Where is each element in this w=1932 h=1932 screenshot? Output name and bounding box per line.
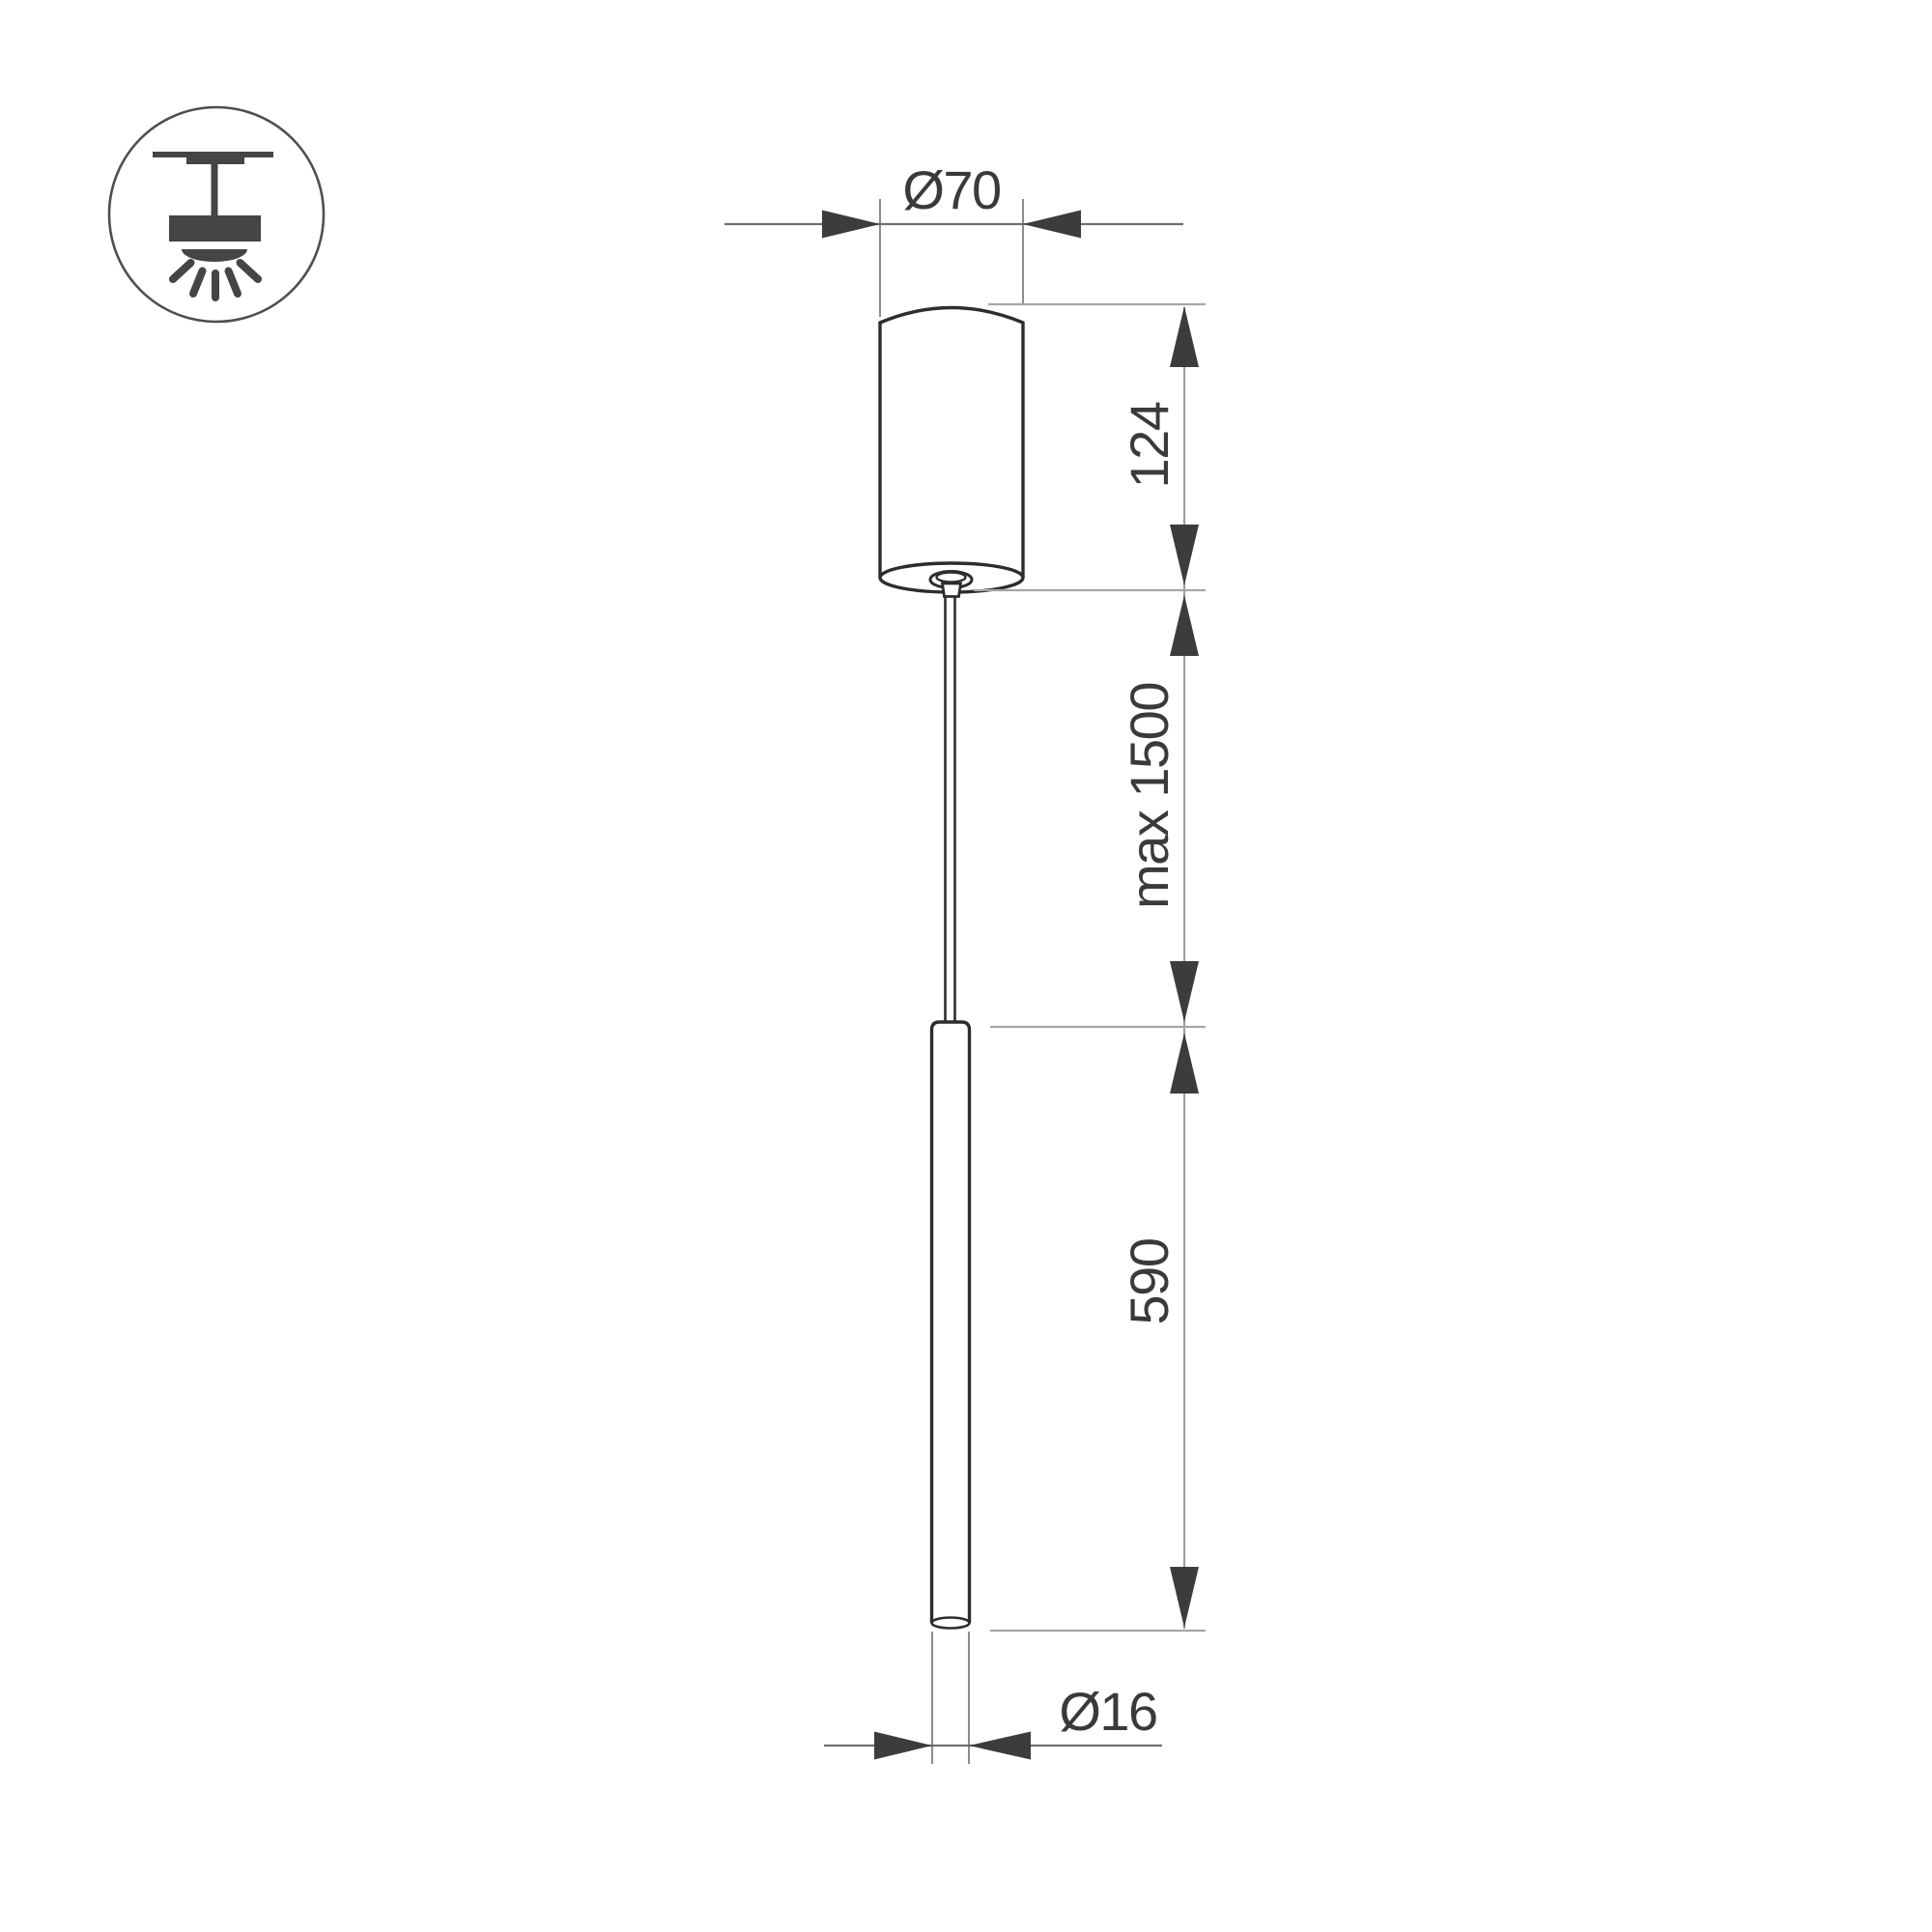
- dim-tube-diameter-label: Ø16: [1059, 1681, 1156, 1742]
- icon-lamp-body: [169, 215, 261, 241]
- tube-outline: [932, 1022, 970, 1623]
- arrow-up-icon: [1170, 1033, 1199, 1094]
- fixture-drawing: [880, 308, 1023, 1629]
- arrow-left-icon: [1023, 211, 1081, 239]
- dimension-tube-length: 590: [1119, 1033, 1199, 1628]
- dimension-canopy-height: 124: [1119, 306, 1199, 585]
- dimension-suspension-length: max 1500: [1119, 595, 1199, 1022]
- tube-bottom-rim: [932, 1618, 970, 1629]
- arrow-right-icon: [822, 211, 880, 239]
- arrow-right-icon: [874, 1732, 932, 1760]
- ceiling-pendant-mount-icon: [109, 107, 324, 322]
- arrow-up-icon: [1170, 306, 1199, 367]
- arrow-left-icon: [969, 1732, 1031, 1760]
- vertical-dimension-chain: 124 max 1500 590: [974, 304, 1206, 1631]
- cable-gland: [943, 583, 961, 597]
- dim-canopy-height-label: 124: [1119, 402, 1179, 488]
- arrow-down-icon: [1170, 961, 1199, 1022]
- cable-connector-rim: [937, 573, 966, 582]
- icon-stem: [212, 162, 218, 215]
- arrow-down-icon: [1170, 1567, 1199, 1628]
- canopy-outline: [880, 308, 1023, 579]
- pendant-luminaire-dimension-drawing: Ø70 124 max 1500 590: [0, 0, 1932, 1932]
- dimension-tube-diameter: Ø16: [824, 1632, 1162, 1764]
- arrow-down-icon: [1170, 525, 1199, 585]
- dimension-canopy-diameter: Ø70: [724, 159, 1183, 317]
- technical-drawing-page: Ø70 124 max 1500 590: [0, 0, 1932, 1932]
- dim-suspension-label: max 1500: [1119, 683, 1179, 909]
- dim-canopy-diameter-label: Ø70: [902, 159, 1000, 220]
- arrow-up-icon: [1170, 595, 1199, 656]
- dim-tube-length-label: 590: [1119, 1239, 1179, 1325]
